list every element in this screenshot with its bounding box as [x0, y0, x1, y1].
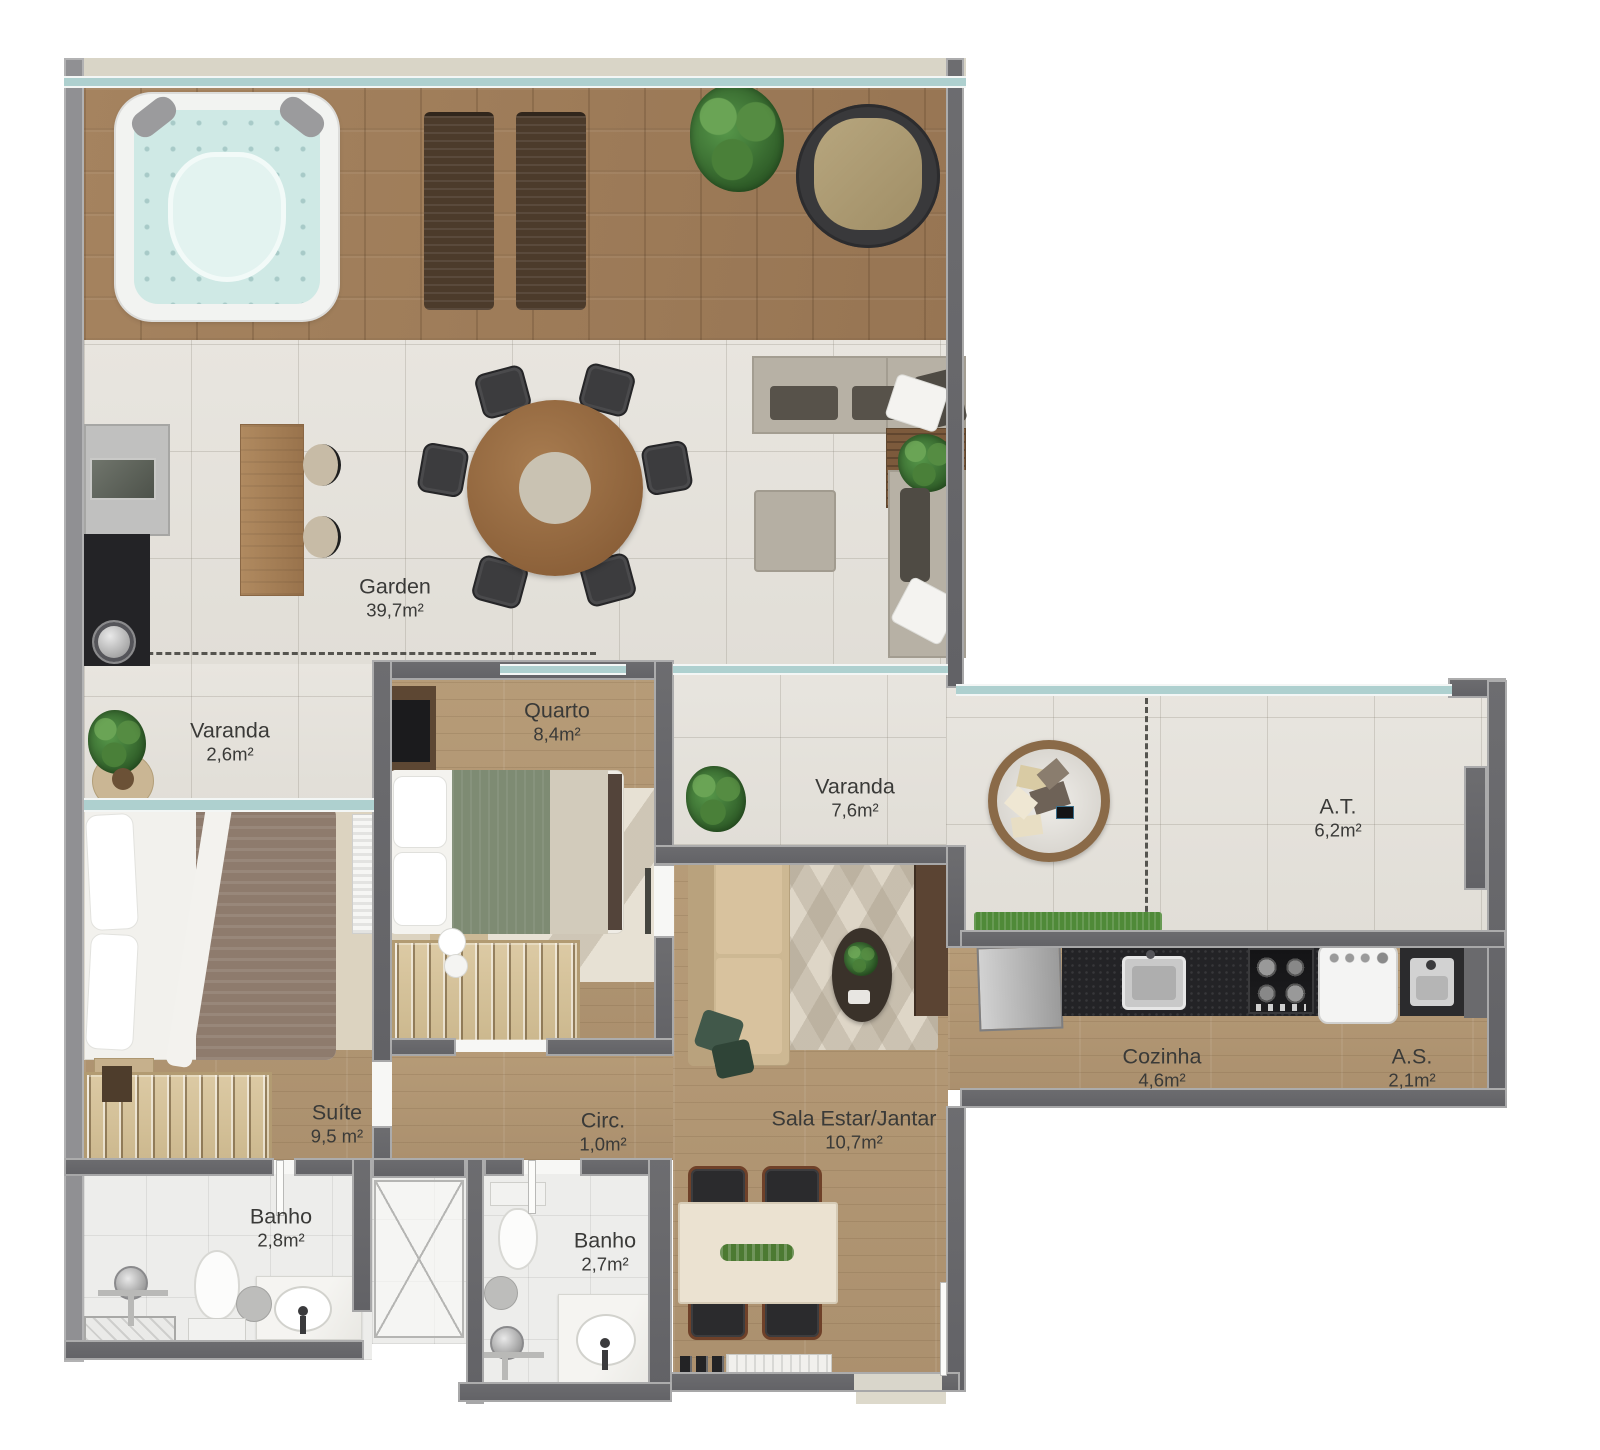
bed-pillow — [85, 813, 139, 931]
varanda1-plant — [88, 710, 146, 774]
kitchen-top-wall — [960, 930, 1506, 948]
round-grill — [92, 620, 136, 664]
washer-dials — [1328, 952, 1390, 964]
room-label-suite: Suíte 9,5 m² — [311, 1100, 363, 1149]
shower-box-left-wall — [352, 1158, 372, 1312]
quarto-tv — [392, 700, 430, 762]
room-area: 2,8m² — [250, 1230, 312, 1253]
projection-dashed-line — [84, 652, 596, 655]
shower-bar — [484, 1352, 544, 1358]
quarto-window — [500, 664, 626, 675]
bed-foot-throw — [550, 770, 608, 934]
sala-glass-door-line — [940, 1282, 947, 1376]
circ-floor — [372, 1040, 673, 1160]
sala-bottom-glass-segment — [854, 1374, 942, 1390]
coffee-table-plant-small — [844, 942, 878, 976]
terrace-chair — [416, 441, 470, 498]
at-dashed-divider — [1145, 698, 1148, 930]
quarto-bottom-wall-right — [546, 1038, 674, 1056]
terrace-top-glass-rail — [64, 76, 966, 88]
quarto-circ-threshold — [456, 1040, 546, 1052]
hot-tub-seat — [168, 152, 286, 282]
side-table-decor — [102, 1066, 132, 1102]
room-label-as: A.S. 2,1m² — [1388, 1044, 1435, 1093]
room-area: 6,2m² — [1314, 820, 1361, 843]
kitchen-sink-basin — [1132, 966, 1176, 1000]
decor-sphere — [438, 928, 466, 956]
bed-pillow — [85, 933, 139, 1051]
sofa-cushion — [900, 488, 930, 582]
right-wall-pilaster — [1464, 766, 1487, 890]
fire-pit-pillow — [1011, 814, 1043, 838]
room-label-banho-2: Banho 2,7m² — [574, 1228, 636, 1277]
toilet-bowl — [498, 1208, 538, 1270]
sala-tv-panel — [914, 848, 948, 1016]
kitchen-faucet — [1146, 950, 1155, 959]
room-name: A.T. — [1314, 794, 1361, 820]
bed-quilt-green — [452, 770, 550, 934]
room-name: A.S. — [1388, 1044, 1435, 1070]
terrace-right-wall — [946, 58, 964, 688]
sink-drain — [602, 1350, 608, 1370]
terrace-top-border — [64, 58, 966, 78]
room-label-at: A.T. 6,2m² — [1314, 794, 1361, 843]
table-centerpiece — [519, 452, 591, 524]
shower-box-top-wall — [372, 1158, 466, 1178]
right-exterior-wall — [1487, 680, 1507, 1108]
floor-plan: Garden 39,7m² Varanda 2,6m² Quarto 8,4m²… — [0, 0, 1600, 1450]
sink-faucet — [600, 1338, 610, 1348]
toilet-tank — [188, 1318, 246, 1342]
bar-stool — [303, 444, 341, 486]
room-area: 9,5 m² — [311, 1126, 363, 1149]
room-label-cozinha: Cozinha 4,6m² — [1123, 1044, 1202, 1093]
banho2-right-wall — [648, 1158, 672, 1392]
sofa-seat-cushion — [716, 858, 782, 954]
ottoman — [754, 490, 836, 572]
terrace-chair — [640, 439, 694, 496]
louver-panel — [352, 814, 374, 934]
varanda2-plant — [686, 766, 746, 832]
top-right-glass-rail — [956, 684, 1452, 696]
banho2-top-wall-left — [484, 1158, 524, 1176]
room-name: Cozinha — [1123, 1044, 1202, 1070]
gourmet-counter-panel — [90, 458, 156, 500]
sun-lounger — [424, 112, 494, 310]
room-area: 2,6m² — [190, 744, 270, 767]
bath-stool — [484, 1276, 518, 1310]
side-table-cup — [112, 768, 134, 790]
bath-top-wall-left — [64, 1158, 274, 1176]
room-label-varanda-2: Varanda 7,6m² — [815, 774, 895, 823]
suite-door-threshold — [372, 1062, 392, 1126]
quarto-door-threshold — [654, 866, 674, 936]
decor-sphere — [444, 954, 468, 978]
bar-stool — [303, 516, 341, 558]
room-name: Varanda — [815, 774, 895, 800]
fridge — [977, 945, 1064, 1032]
room-area: 39,7m² — [359, 600, 431, 623]
grass-strip — [974, 912, 1162, 932]
room-area: 10,7m² — [772, 1132, 937, 1155]
room-label-garden: Garden 39,7m² — [359, 574, 431, 623]
bath-stool — [236, 1286, 272, 1322]
banho2-bottom-wall — [458, 1382, 672, 1402]
sink-faucet — [298, 1306, 308, 1316]
room-name: Banho — [574, 1228, 636, 1254]
shower-box-right-wall — [466, 1158, 484, 1404]
room-area: 4,6m² — [1123, 1070, 1202, 1093]
daybed-cushion — [814, 118, 922, 230]
room-label-sala: Sala Estar/Jantar 10,7m² — [772, 1106, 937, 1155]
bar-table — [240, 424, 304, 596]
varanda1-window-line — [84, 798, 374, 812]
sun-lounger — [516, 112, 586, 310]
quarto-bottom-wall-left — [390, 1038, 456, 1056]
room-area: 7,6m² — [815, 800, 895, 823]
shower-pipe — [128, 1296, 134, 1326]
banho2-door-leaf — [528, 1160, 536, 1214]
sink-drain — [300, 1316, 306, 1334]
room-name: Sala Estar/Jantar — [772, 1106, 937, 1132]
outside-deck-strip — [856, 1392, 946, 1404]
room-area: 2,7m² — [574, 1254, 636, 1277]
banho2-top-wall-right — [580, 1158, 654, 1176]
varanda2-glass-line — [673, 664, 948, 675]
room-label-quarto: Quarto 8,4m² — [524, 698, 590, 747]
sala-right-wall-lower — [946, 1106, 966, 1392]
remote-control — [1056, 806, 1074, 819]
sala-top-wall — [654, 845, 966, 865]
room-area: 1,0m² — [579, 1134, 626, 1157]
room-label-banho-1: Banho 2,8m² — [250, 1204, 312, 1253]
counter-end-pillar — [1464, 946, 1487, 1018]
room-label-varanda-1: Varanda 2,6m² — [190, 718, 270, 767]
room-name: Circ. — [579, 1108, 626, 1134]
dining-centerpiece — [720, 1244, 794, 1261]
toilet-tank — [490, 1182, 546, 1206]
bed-foot-frame — [608, 774, 622, 930]
laundry-tank-bowl — [1416, 976, 1448, 1000]
shower-pipe — [502, 1356, 508, 1380]
quarto-left-wall — [372, 660, 392, 1062]
quarto-right-wall-upper — [654, 660, 674, 866]
room-name: Garden — [359, 574, 431, 600]
room-area: 8,4m² — [524, 724, 590, 747]
bed-pillow — [393, 852, 447, 926]
room-name: Banho — [250, 1204, 312, 1230]
room-name: Quarto — [524, 698, 590, 724]
room-name: Varanda — [190, 718, 270, 744]
room-name: Suíte — [311, 1100, 363, 1126]
bed-pillow — [393, 776, 447, 848]
sofa-cushion — [770, 386, 838, 420]
cooktop-knobs — [1256, 1004, 1306, 1011]
coffee-table-tray — [848, 990, 870, 1004]
quarto-door-leaf — [645, 868, 651, 934]
toilet-bowl — [194, 1250, 240, 1320]
banho1-bottom-wall — [64, 1340, 364, 1360]
room-area: 2,1m² — [1388, 1070, 1435, 1093]
quarto-wardrobe — [392, 940, 580, 1044]
room-label-circ: Circ. 1,0m² — [579, 1108, 626, 1157]
shower-box — [374, 1180, 464, 1338]
laundry-faucet — [1426, 960, 1436, 970]
